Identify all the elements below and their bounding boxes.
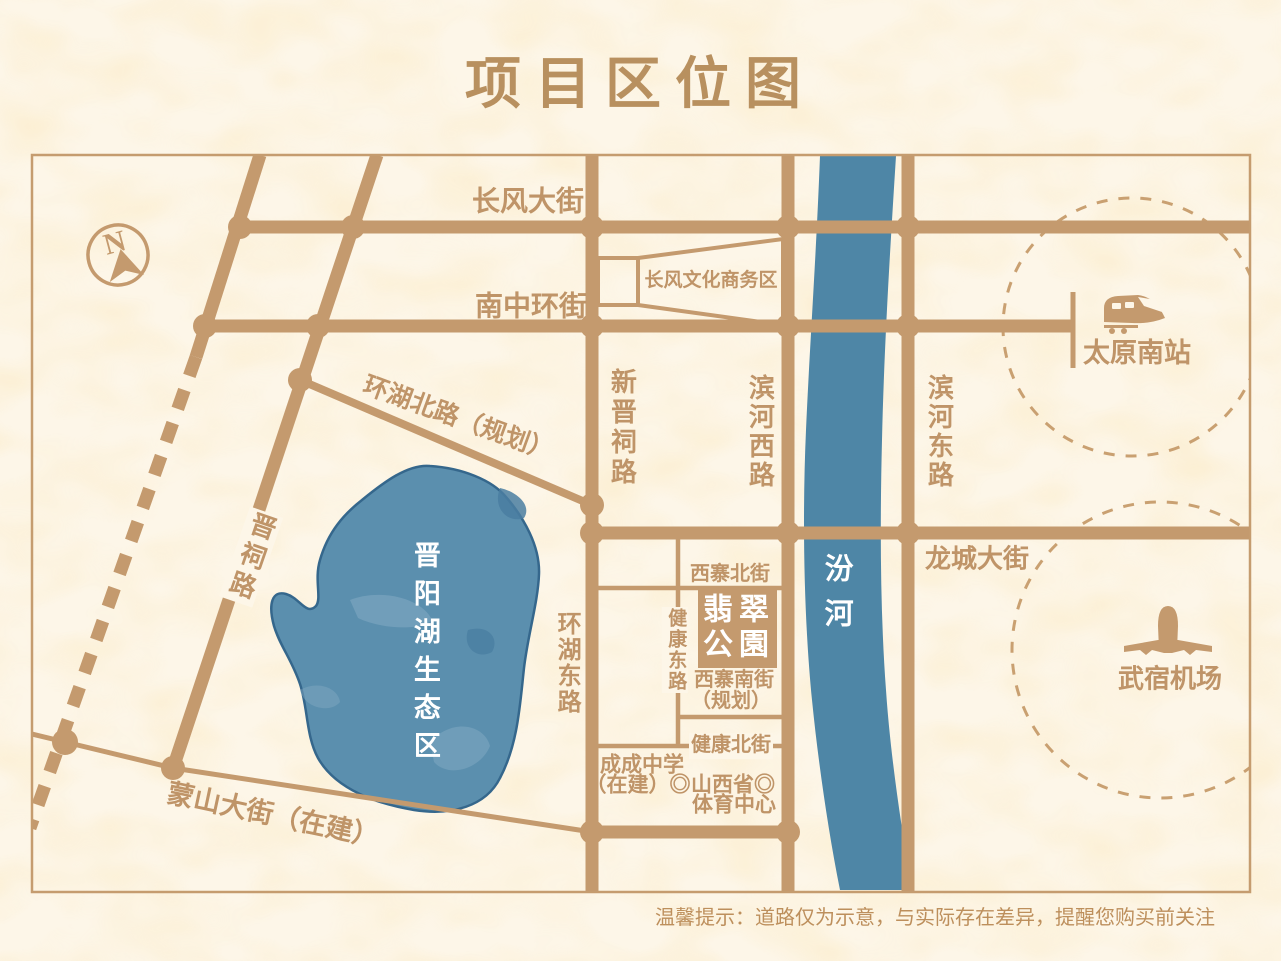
location-map: N 项目区位图 长风大街 南中环街 长风文化商务区 太原南站 武宿机场 环湖北路…	[0, 0, 1281, 961]
label-fen-river: 汾河	[819, 553, 853, 643]
label-shanxi-sports-center2: 体育中心	[692, 794, 776, 819]
label-longcheng-street: 龙城大街	[925, 544, 1029, 575]
label-taiyuan-south-station: 太原南站	[1083, 338, 1191, 370]
label-changfeng-street: 长风大街	[472, 184, 584, 217]
label-jinyang-lake-zone: 晋阳湖生态区	[408, 541, 440, 769]
label-xizhai-north-street: 西寨北街	[690, 563, 770, 587]
disclaimer-text: 温馨提示：道路仅为示意，与实际存在差异，提醒您购买前关注	[655, 907, 1215, 931]
label-jiankang-north-street: 健康北街	[689, 733, 773, 759]
label-wusu-airport: 武宿机场	[1118, 664, 1222, 695]
label-nanzhonghuan-street: 南中环街	[475, 289, 587, 322]
label-binhe-east-road: 滨河东路	[924, 374, 955, 490]
label-jiankang-east-road: 健康东路	[662, 607, 688, 693]
paper-texture	[0, 0, 1281, 961]
label-chengcheng-school-note: （在建）◎	[586, 774, 691, 799]
project-name-line1: 翡翠	[703, 593, 775, 628]
label-xinjinci-road: 新晋祠路	[607, 368, 638, 488]
label-binhe-west-road: 滨河西路	[745, 374, 776, 490]
project-marker-feicui-park: 翡翠 公園	[703, 593, 775, 664]
project-name-line2: 公園	[703, 628, 775, 663]
page-title: 项目区位图	[465, 51, 815, 117]
label-cbd-zone: 长风文化商务区	[644, 270, 777, 292]
label-huanhu-east-road: 环湖东路	[552, 611, 580, 715]
label-xizhai-south-street-note: （规划）	[691, 690, 771, 714]
map-canvas: N	[0, 0, 1281, 961]
